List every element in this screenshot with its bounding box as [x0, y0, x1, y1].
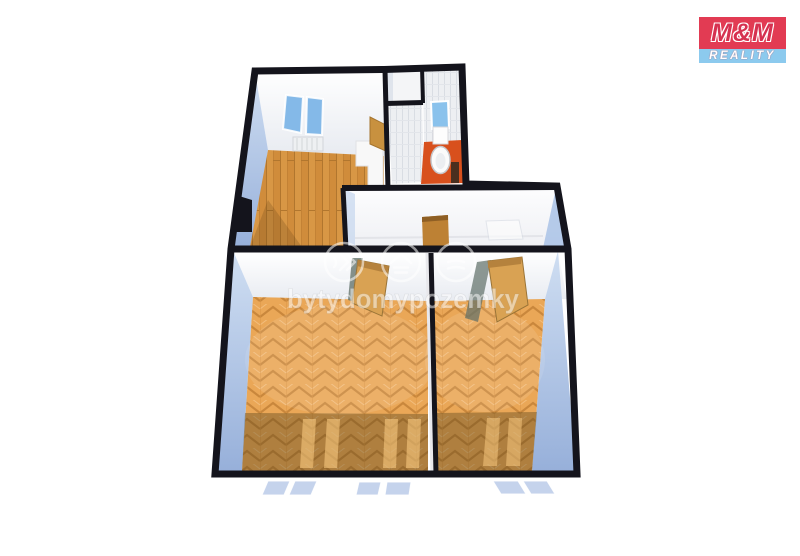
room-right-light: [425, 308, 545, 412]
waste-bin-icon: [451, 162, 459, 183]
radiator-icon: [293, 137, 323, 151]
room-closet: [387, 69, 421, 102]
window-pane-icon: [493, 481, 526, 494]
floor-plan-image: bytydomypozemky M&M REALITY: [0, 0, 800, 556]
room-hallway: [346, 188, 567, 248]
hallway-mat: [486, 220, 523, 240]
kitchen-window-icon: [306, 97, 323, 135]
logo-mm-text: M&M: [699, 17, 786, 49]
wall-closet-bottom: [386, 103, 423, 104]
window-pane-icon: [356, 482, 381, 495]
wc-window-icon: [431, 101, 449, 129]
logo-reality-text: REALITY: [699, 49, 786, 63]
window-pane-icon: [289, 481, 317, 495]
floor-plan-canvas: bytydomypozemky: [0, 0, 800, 556]
mm-reality-logo: M&M REALITY: [699, 17, 786, 63]
room-left-light: [245, 305, 435, 415]
wc-left-wall-tiled: [388, 104, 424, 184]
hallway-interior: [346, 188, 567, 248]
wall-kitchen-hallway: [343, 188, 346, 249]
kitchen-window-icon: [283, 95, 303, 133]
exterior-windows: [262, 481, 555, 495]
window-pane-icon: [523, 481, 555, 494]
wall-kitchen-right: [385, 70, 388, 189]
watermark-text: bytydomypozemky: [287, 284, 519, 314]
wall-hallway-top: [342, 187, 557, 188]
wall-closet-wc: [422, 67, 423, 103]
window-pane-icon: [385, 482, 411, 495]
window-pane-icon: [262, 481, 290, 495]
toilet-bowl: [436, 153, 446, 169]
toilet-cistern: [433, 127, 448, 144]
